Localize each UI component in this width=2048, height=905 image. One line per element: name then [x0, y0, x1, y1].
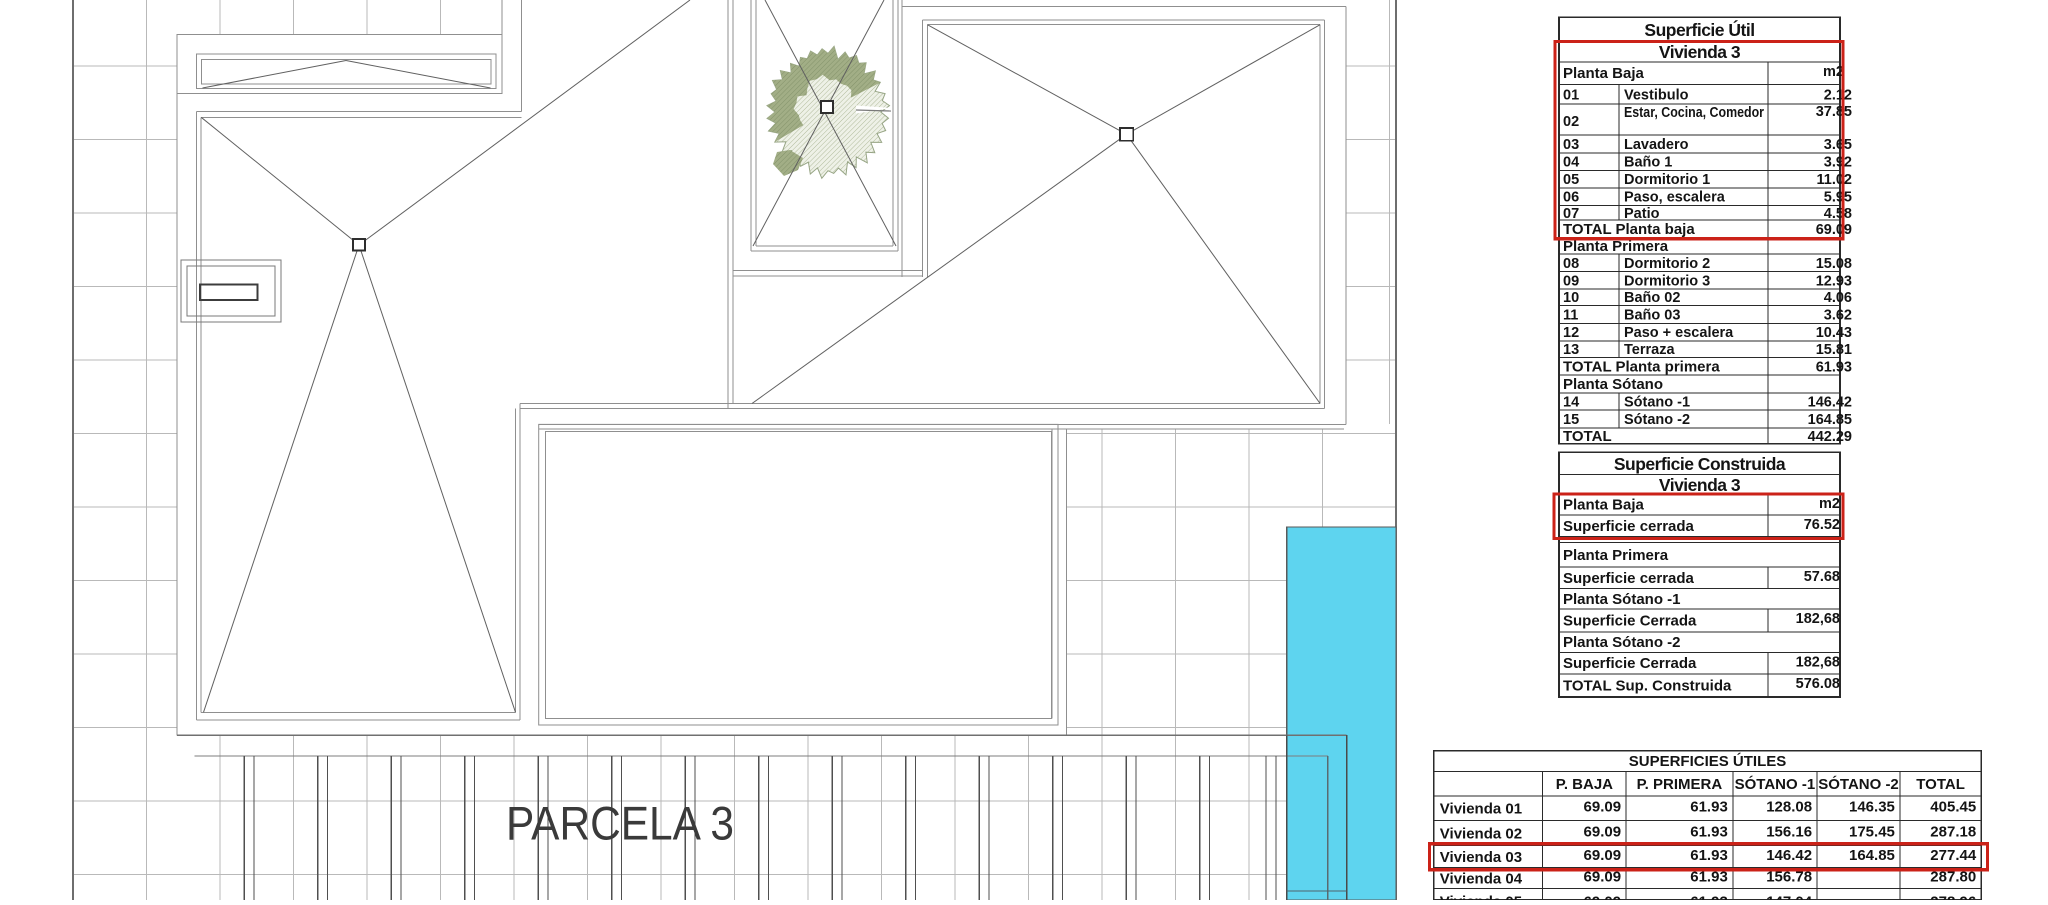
svg-text:m2: m2	[1819, 496, 1840, 512]
svg-text:Baño 03: Baño 03	[1624, 307, 1680, 323]
svg-text:69.09: 69.09	[1584, 799, 1622, 816]
svg-text:146.35: 146.35	[1849, 799, 1895, 816]
svg-text:Estar, Cocina, Comedor: Estar, Cocina, Comedor	[1624, 105, 1764, 121]
svg-text:2.12: 2.12	[1824, 87, 1852, 103]
svg-text:61.93: 61.93	[1690, 894, 1728, 901]
svg-text:Sótano -1: Sótano -1	[1624, 394, 1690, 410]
svg-text:Planta Sótano -1: Planta Sótano -1	[1563, 591, 1681, 608]
svg-text:Vivienda 3: Vivienda 3	[1659, 42, 1741, 62]
svg-text:4.58: 4.58	[1824, 206, 1852, 222]
svg-text:TOTAL: TOTAL	[1563, 428, 1612, 445]
svg-text:Superficie Cerrada: Superficie Cerrada	[1563, 613, 1697, 630]
svg-text:P. BAJA: P. BAJA	[1556, 776, 1613, 793]
svg-text:09: 09	[1563, 273, 1579, 289]
svg-text:14: 14	[1563, 394, 1579, 410]
svg-text:Planta Baja: Planta Baja	[1563, 65, 1645, 82]
svg-text:287.18: 287.18	[1930, 823, 1976, 840]
svg-text:Patio: Patio	[1624, 206, 1660, 222]
svg-text:3.62: 3.62	[1824, 307, 1852, 323]
svg-text:Planta Primera: Planta Primera	[1563, 547, 1669, 564]
svg-text:15.81: 15.81	[1816, 342, 1852, 358]
svg-text:164.85: 164.85	[1808, 412, 1852, 428]
svg-text:37.85: 37.85	[1816, 104, 1852, 120]
svg-text:69.09: 69.09	[1584, 847, 1622, 864]
svg-text:69.09: 69.09	[1816, 222, 1852, 238]
svg-text:69.09: 69.09	[1584, 894, 1622, 901]
svg-text:03: 03	[1563, 137, 1579, 153]
svg-text:TOTAL Sup. Construida: TOTAL Sup. Construida	[1563, 678, 1732, 695]
svg-text:15.08: 15.08	[1816, 256, 1852, 272]
svg-text:SÓTANO -1: SÓTANO -1	[1735, 775, 1816, 793]
svg-text:06: 06	[1563, 190, 1579, 206]
svg-text:3.92: 3.92	[1824, 155, 1852, 171]
svg-text:4.06: 4.06	[1824, 290, 1852, 306]
svg-text:278.96: 278.96	[1930, 894, 1976, 901]
svg-text:Vivienda 05: Vivienda 05	[1440, 894, 1522, 901]
svg-text:12.93: 12.93	[1816, 273, 1852, 289]
svg-text:146.42: 146.42	[1766, 847, 1812, 864]
svg-text:TOTAL Planta baja: TOTAL Planta baja	[1563, 221, 1695, 238]
svg-text:Planta Sótano: Planta Sótano	[1563, 376, 1663, 393]
svg-text:Superficie Útil: Superficie Útil	[1644, 19, 1754, 40]
svg-text:13: 13	[1563, 342, 1579, 358]
svg-text:P. PRIMERA: P. PRIMERA	[1637, 776, 1723, 793]
svg-text:Vestibulo: Vestibulo	[1624, 87, 1689, 103]
svg-text:156.16: 156.16	[1766, 823, 1812, 840]
svg-text:Vivienda 02: Vivienda 02	[1440, 825, 1522, 842]
svg-text:Vivienda 01: Vivienda 01	[1440, 801, 1522, 818]
svg-text:Paso + escalera: Paso + escalera	[1624, 325, 1734, 341]
svg-text:405.45: 405.45	[1930, 799, 1976, 816]
svg-text:182,68: 182,68	[1796, 611, 1840, 627]
svg-text:146.42: 146.42	[1808, 394, 1852, 410]
svg-text:57.68: 57.68	[1804, 569, 1840, 585]
svg-text:76.52: 76.52	[1804, 517, 1840, 533]
svg-text:12: 12	[1563, 325, 1579, 341]
svg-text:Baño 1: Baño 1	[1624, 155, 1672, 171]
svg-text:Vivienda 03: Vivienda 03	[1440, 849, 1522, 866]
svg-text:Baño 02: Baño 02	[1624, 290, 1680, 306]
svg-text:PARCELA 3: PARCELA 3	[506, 797, 734, 850]
svg-text:61.93: 61.93	[1690, 847, 1728, 864]
svg-text:07: 07	[1563, 206, 1579, 222]
svg-text:TOTAL Planta primera: TOTAL Planta primera	[1563, 358, 1720, 375]
svg-text:576.08: 576.08	[1796, 676, 1840, 692]
svg-text:277.44: 277.44	[1930, 847, 1977, 864]
svg-text:15: 15	[1563, 412, 1579, 428]
svg-text:61.93: 61.93	[1690, 823, 1728, 840]
svg-text:5.95: 5.95	[1824, 190, 1852, 206]
svg-text:128.08: 128.08	[1766, 799, 1812, 816]
svg-text:61.93: 61.93	[1816, 359, 1852, 375]
svg-text:04: 04	[1563, 155, 1579, 171]
svg-text:147.04: 147.04	[1766, 894, 1813, 901]
svg-text:61.93: 61.93	[1690, 799, 1728, 816]
svg-text:Dormitorio 2: Dormitorio 2	[1624, 256, 1710, 272]
svg-text:05: 05	[1563, 172, 1579, 188]
svg-text:69.09: 69.09	[1584, 823, 1622, 840]
svg-text:Planta Baja: Planta Baja	[1563, 496, 1645, 513]
svg-text:11: 11	[1563, 307, 1578, 323]
svg-text:Dormitorio 1: Dormitorio 1	[1624, 172, 1710, 188]
svg-text:Superficie Cerrada: Superficie Cerrada	[1563, 655, 1697, 672]
svg-text:182,68: 182,68	[1796, 654, 1840, 670]
svg-text:TOTAL: TOTAL	[1916, 776, 1965, 793]
svg-text:m2: m2	[1823, 64, 1844, 80]
svg-text:SUPERFICIES ÚTILES: SUPERFICIES ÚTILES	[1629, 752, 1787, 770]
svg-text:Dormitorio 3: Dormitorio 3	[1624, 273, 1710, 289]
svg-text:02: 02	[1563, 114, 1579, 130]
svg-text:Sótano -2: Sótano -2	[1624, 412, 1690, 428]
svg-text:Superficie cerrada: Superficie cerrada	[1563, 518, 1695, 535]
svg-text:Planta Sótano -2: Planta Sótano -2	[1563, 634, 1681, 651]
svg-text:Terraza: Terraza	[1624, 342, 1675, 358]
svg-text:164.85: 164.85	[1849, 847, 1895, 864]
svg-text:SÓTANO -2: SÓTANO -2	[1818, 775, 1899, 793]
svg-text:Superficie cerrada: Superficie cerrada	[1563, 570, 1695, 587]
svg-text:01: 01	[1563, 87, 1579, 103]
svg-text:Vivienda 3: Vivienda 3	[1659, 475, 1741, 495]
svg-text:10: 10	[1563, 290, 1579, 306]
svg-text:08: 08	[1563, 256, 1579, 272]
svg-text:Lavadero: Lavadero	[1624, 137, 1689, 153]
svg-text:11.02: 11.02	[1817, 172, 1853, 188]
svg-text:Paso, escalera: Paso, escalera	[1624, 190, 1726, 206]
svg-text:175.45: 175.45	[1849, 823, 1895, 840]
svg-text:Superficie Construida: Superficie Construida	[1614, 454, 1786, 474]
svg-text:442.29: 442.29	[1808, 429, 1852, 445]
svg-text:3.65: 3.65	[1824, 137, 1852, 153]
svg-text:Vivienda 04: Vivienda 04	[1440, 871, 1523, 888]
svg-text:10.43: 10.43	[1816, 325, 1852, 341]
